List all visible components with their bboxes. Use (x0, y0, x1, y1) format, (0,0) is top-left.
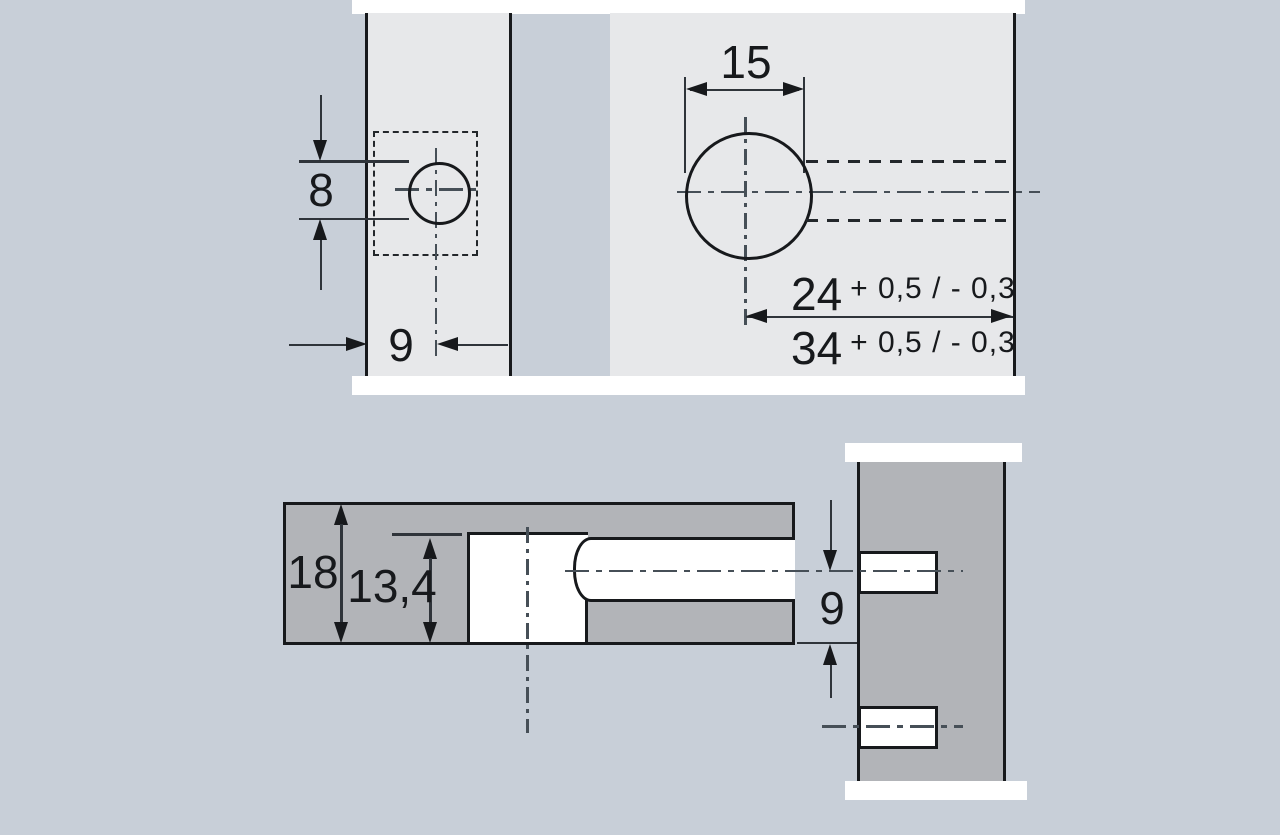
dim134-extension (392, 533, 462, 536)
pocket-vertical-centerline (526, 527, 529, 733)
large-hole-circle (685, 132, 813, 260)
dim8-label: 8 (308, 167, 334, 213)
dim9b-label: 9 (819, 585, 845, 631)
dim2434-arrowhead-left-icon (746, 309, 767, 323)
top-view-upper-edge-strip (352, 0, 1025, 14)
drill-axis-centerline (565, 570, 963, 573)
dim9-arrowhead-left-icon (437, 337, 458, 351)
dim8-arrowhead-down-icon (313, 140, 327, 161)
dim24-tolerance: + 0,5 / - 0,3 (850, 271, 1016, 304)
dim18-arrowhead-up-icon (334, 504, 348, 525)
dim134-arrowhead-down-icon (423, 622, 437, 643)
vertical-board-upper-drill-hole (858, 551, 938, 594)
dim24-value: 24 (791, 271, 842, 317)
small-hole-circle (408, 162, 471, 225)
dim24-label-group: 24 + 0,5 / - 0,3 (791, 271, 1016, 317)
dim9b-arrow-line-bottom (830, 665, 833, 698)
dim9-line-left (289, 344, 347, 347)
dim15-label: 15 (720, 39, 771, 85)
dim134-label: 13,4 (347, 563, 437, 609)
lower-hole-centerline (822, 725, 963, 728)
dim34-label-group: 34 + 0,5 / - 0,3 (791, 325, 1016, 371)
vertical-board-lower-edge-strip (845, 781, 1027, 800)
dim8-arrow-line-bottom (320, 240, 323, 290)
dim15-arrowhead-left-icon (686, 82, 707, 96)
vertical-board-lower-drill-hole (858, 706, 938, 749)
top-view-lower-edge-strip (352, 376, 1025, 395)
dim34-tolerance: + 0,5 / - 0,3 (850, 325, 1016, 358)
dim134-arrowhead-up-icon (423, 538, 437, 559)
dim8-arrowhead-up-icon (313, 219, 327, 240)
dim9b-arrowhead-down-icon (823, 550, 837, 571)
vertical-board-upper-edge-strip (845, 443, 1022, 462)
dim34-value: 34 (791, 325, 842, 371)
technical-drawing: 8 9 15 24 + 0,5 / - 0,3 34 + 0,5 / - 0,3… (0, 0, 1280, 835)
dim9b-arrowhead-up-icon (823, 644, 837, 665)
dim9-arrowhead-right-icon (346, 337, 367, 351)
hidden-tangent-line-top (806, 160, 1006, 163)
hidden-tangent-line-bottom (806, 219, 1006, 222)
dim18-arrowhead-down-icon (334, 622, 348, 643)
dim9-label: 9 (388, 322, 414, 368)
section-pocket-right-edge (585, 599, 588, 642)
dim9-line-right (458, 344, 508, 347)
dim15-arrowhead-right-icon (783, 82, 804, 96)
dim8-arrow-line-top (320, 95, 323, 141)
dim18-line (340, 524, 343, 623)
dim18-label: 18 (287, 549, 338, 595)
dim9b-arrow-line-top (830, 500, 833, 551)
